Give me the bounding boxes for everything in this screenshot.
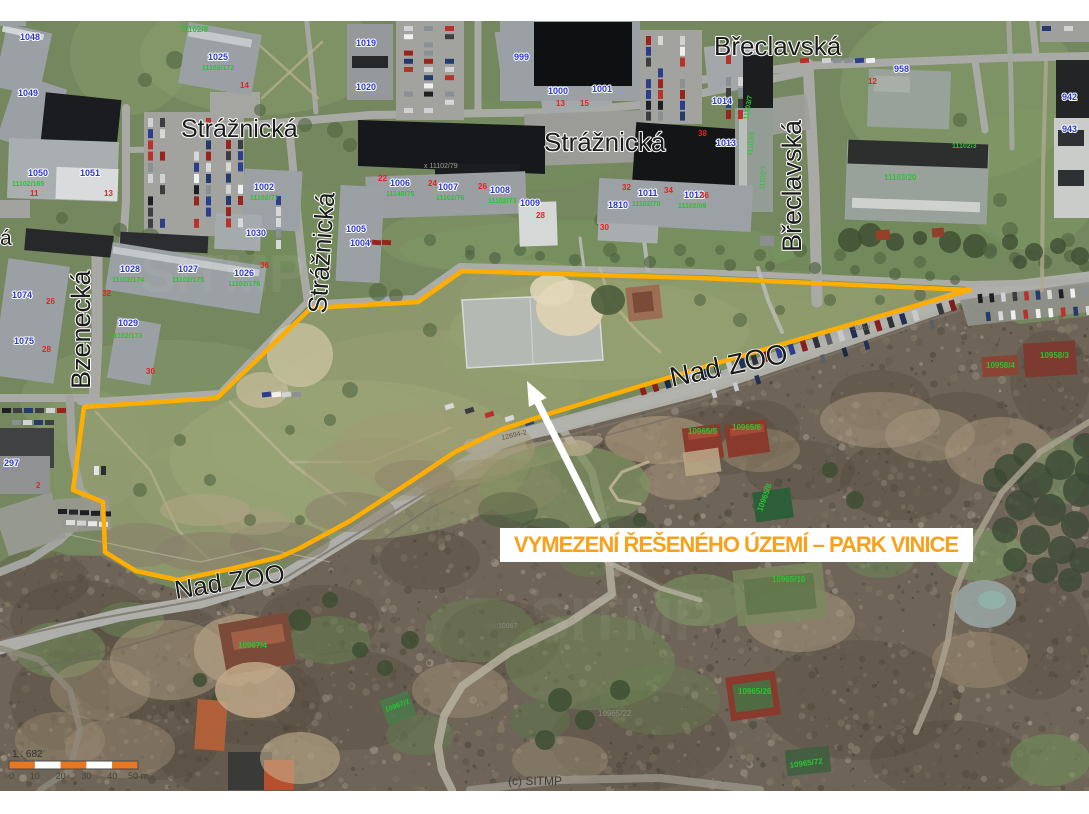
- svg-text:10: 10: [30, 771, 40, 781]
- svg-text:10967/4: 10967/4: [238, 641, 267, 650]
- svg-text:11102/3: 11102/3: [952, 143, 977, 150]
- svg-text:Břeclavská: Břeclavská: [777, 119, 807, 252]
- svg-text:1025: 1025: [208, 52, 228, 62]
- svg-text:11102/173: 11102/173: [110, 333, 142, 340]
- svg-text:13: 13: [556, 99, 565, 108]
- svg-text:1075: 1075: [14, 336, 34, 346]
- svg-text:1050: 1050: [28, 168, 48, 178]
- svg-text:(c) SITMP: (c) SITMP: [508, 774, 562, 788]
- svg-text:38: 38: [698, 129, 707, 138]
- svg-text:30: 30: [146, 367, 155, 376]
- svg-text:SITMP: SITMP: [140, 244, 305, 304]
- svg-text:22: 22: [378, 174, 387, 183]
- svg-text:20: 20: [56, 771, 66, 781]
- svg-text:1013: 1013: [716, 138, 736, 148]
- svg-text:Strážnická: Strážnická: [544, 127, 666, 157]
- svg-text:1 : 682: 1 : 682: [12, 749, 43, 760]
- svg-text:10965/26: 10965/26: [738, 687, 772, 696]
- svg-text:943: 943: [1062, 124, 1077, 134]
- svg-text:11102/70: 11102/70: [632, 201, 661, 208]
- svg-text:0: 0: [9, 771, 14, 781]
- svg-text:11103/20: 11103/20: [884, 173, 917, 182]
- svg-text:Bzenecká: Bzenecká: [66, 269, 96, 389]
- svg-text:12: 12: [868, 77, 877, 86]
- svg-text:32: 32: [622, 183, 631, 192]
- svg-text:11: 11: [30, 189, 39, 198]
- svg-text:1006: 1006: [390, 178, 410, 188]
- svg-text:10965/10: 10965/10: [772, 575, 806, 584]
- svg-text:14: 14: [240, 81, 249, 90]
- svg-text:1028: 1028: [120, 264, 140, 274]
- svg-text:1007: 1007: [438, 182, 458, 192]
- svg-text:1000: 1000: [548, 86, 568, 96]
- svg-text:942: 942: [1062, 92, 1077, 102]
- svg-text:1002: 1002: [254, 182, 274, 192]
- svg-text:1008: 1008: [490, 185, 510, 195]
- svg-text:1019: 1019: [356, 38, 376, 48]
- svg-text:1048: 1048: [20, 32, 40, 42]
- svg-text:11102/172: 11102/172: [202, 65, 234, 72]
- svg-text:1029: 1029: [118, 318, 138, 328]
- svg-text:15: 15: [580, 99, 589, 108]
- svg-text:26: 26: [46, 297, 55, 306]
- svg-text:1810: 1810: [608, 200, 628, 210]
- svg-text:1014: 1014: [712, 96, 732, 106]
- svg-text:11102/174: 11102/174: [112, 277, 144, 284]
- svg-text:x 11102/79: x 11102/79: [424, 163, 458, 170]
- svg-text:1005: 1005: [346, 224, 366, 234]
- svg-text:1026: 1026: [234, 268, 254, 278]
- svg-text:1030: 1030: [246, 228, 266, 238]
- svg-text:11140/75: 11140/75: [386, 191, 415, 198]
- svg-text:1009: 1009: [520, 198, 540, 208]
- svg-text:958: 958: [894, 64, 909, 74]
- svg-text:1020: 1020: [356, 82, 376, 92]
- svg-text:Břeclavská: Břeclavská: [714, 31, 842, 61]
- svg-text:á: á: [0, 227, 12, 250]
- svg-text:13: 13: [104, 189, 113, 198]
- svg-text:999: 999: [514, 52, 529, 62]
- svg-text:30: 30: [81, 771, 91, 781]
- svg-text:11102/8: 11102/8: [180, 25, 209, 34]
- svg-text:VYMEZENÍ ŘEŠENÉHO ÚZEMÍ – PARK: VYMEZENÍ ŘEŠENÉHO ÚZEMÍ – PARK VINICE: [514, 532, 959, 557]
- svg-text:36: 36: [700, 191, 709, 200]
- svg-text:10965/6: 10965/6: [732, 423, 761, 432]
- svg-text:11102/77: 11102/77: [250, 195, 279, 202]
- svg-text:10958/4: 10958/4: [986, 361, 1015, 370]
- svg-text:50 m: 50 m: [128, 771, 148, 781]
- svg-text:Strážnická: Strážnická: [181, 115, 298, 143]
- svg-text:40: 40: [107, 771, 117, 781]
- svg-text:10965/5: 10965/5: [688, 427, 717, 436]
- svg-text:11102/176: 11102/176: [228, 281, 260, 288]
- svg-text:297: 297: [4, 458, 19, 468]
- svg-text:11102/165: 11102/165: [12, 181, 44, 188]
- svg-text:1027: 1027: [178, 264, 198, 274]
- svg-text:1074: 1074: [12, 290, 32, 300]
- svg-text:34: 34: [664, 186, 673, 195]
- svg-text:32: 32: [102, 289, 111, 298]
- svg-text:30: 30: [600, 223, 609, 232]
- svg-text:10967: 10967: [498, 623, 518, 630]
- svg-text:1004: 1004: [350, 238, 370, 248]
- svg-text:1096/2: 1096/2: [852, 326, 871, 332]
- svg-text:1049: 1049: [18, 88, 38, 98]
- svg-text:2: 2: [36, 481, 41, 490]
- svg-text:SITMP: SITMP: [530, 586, 713, 653]
- svg-text:36: 36: [260, 261, 269, 270]
- svg-text:1001: 1001: [592, 84, 612, 94]
- svg-text:11102/175: 11102/175: [172, 277, 204, 284]
- svg-text:1011: 1011: [638, 188, 658, 198]
- svg-text:11102/76: 11102/76: [436, 195, 465, 202]
- svg-text:1051: 1051: [80, 168, 100, 178]
- svg-text:10965/22: 10965/22: [598, 709, 632, 718]
- svg-text:28: 28: [42, 345, 51, 354]
- svg-text:11102/09: 11102/09: [678, 203, 707, 210]
- svg-text:11102/73: 11102/73: [488, 198, 517, 205]
- svg-text:24: 24: [428, 179, 437, 188]
- svg-text:26: 26: [478, 182, 487, 191]
- svg-text:28: 28: [536, 211, 545, 220]
- svg-text:10958/3: 10958/3: [1040, 351, 1069, 360]
